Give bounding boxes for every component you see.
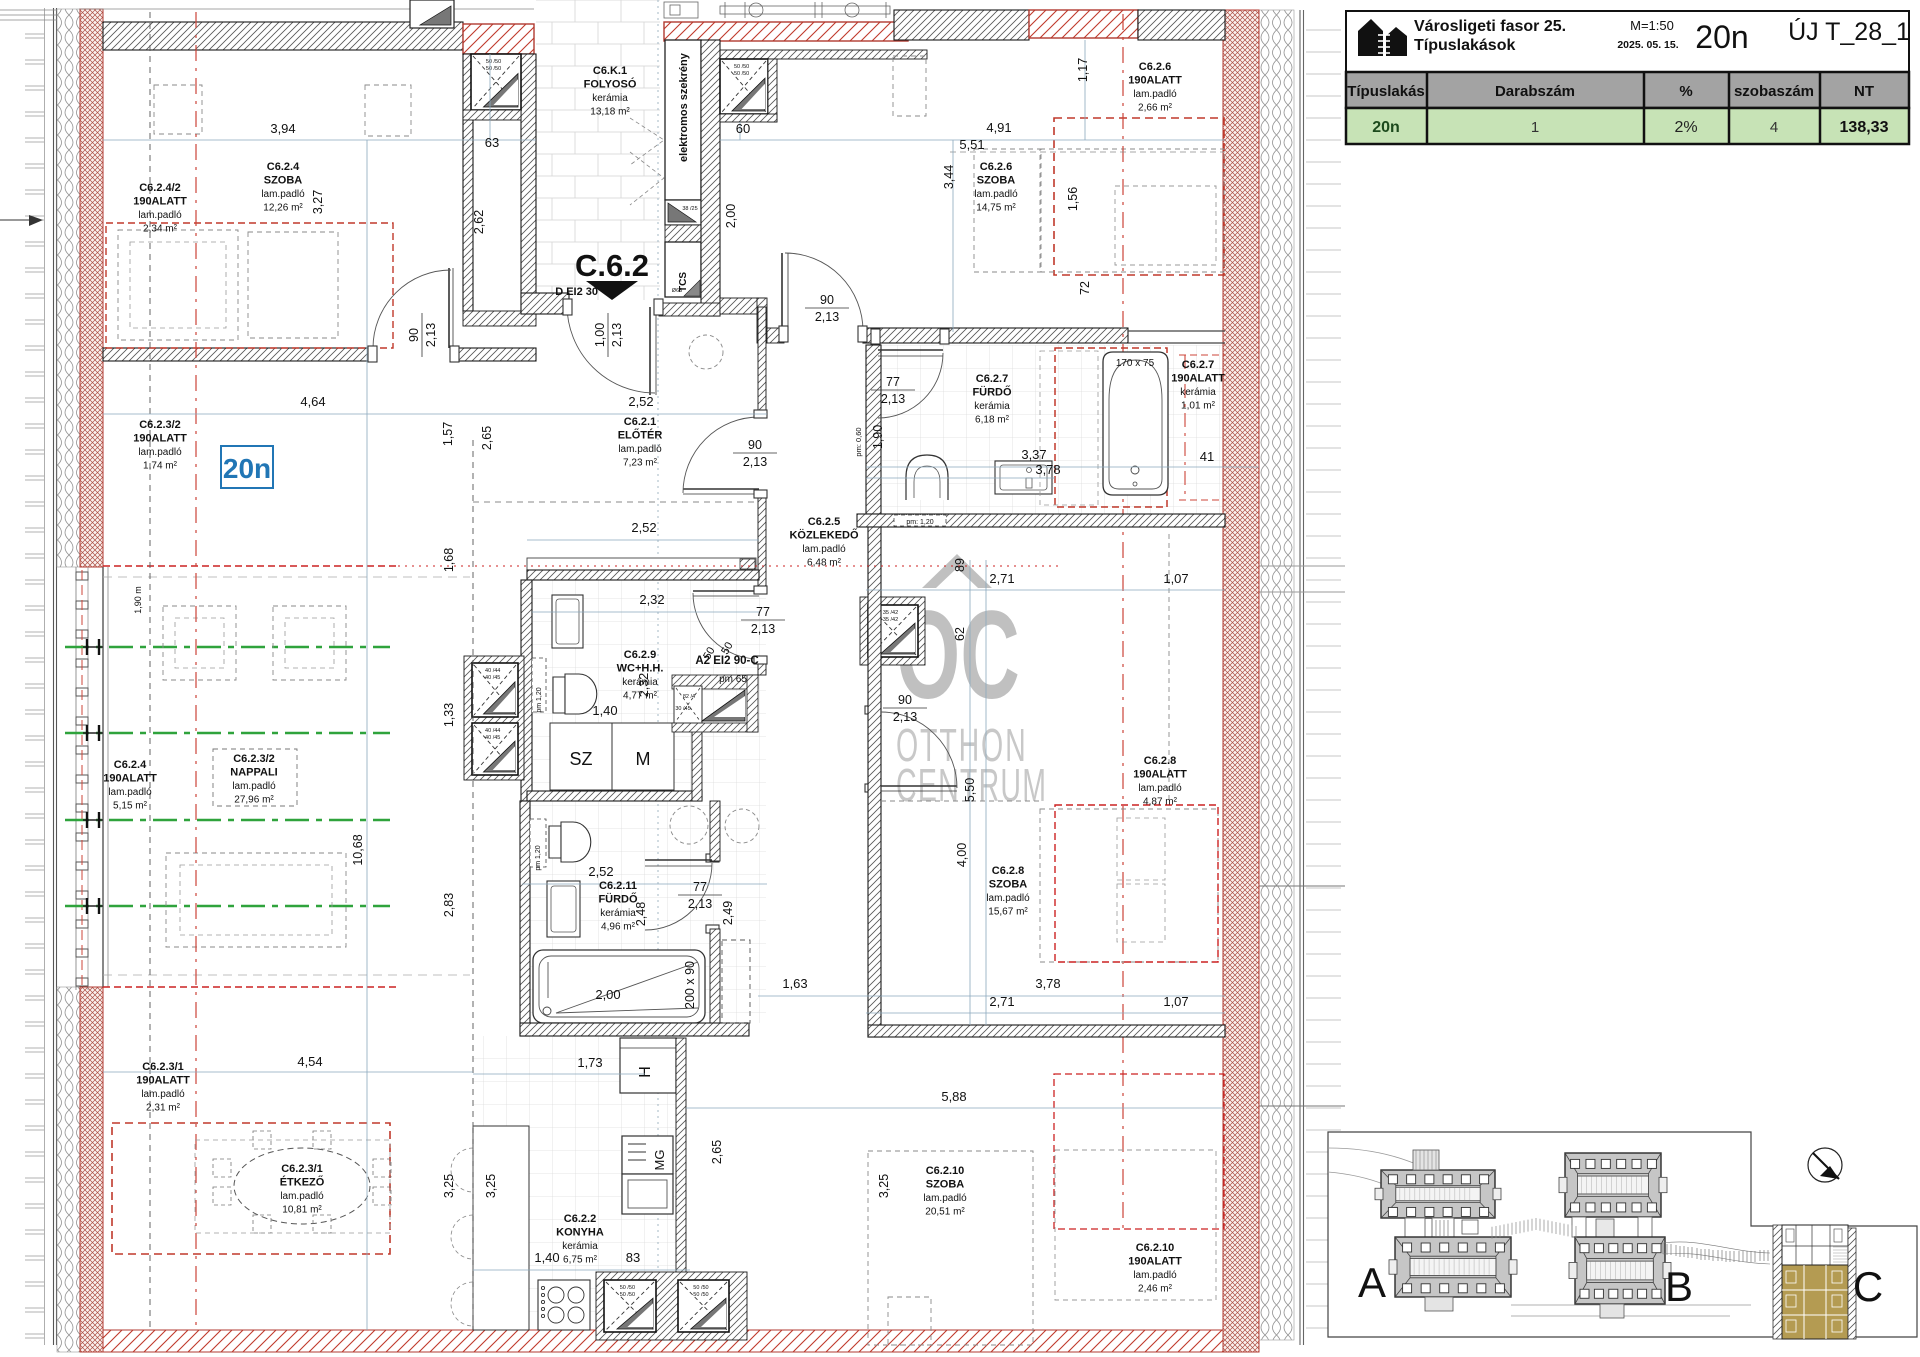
svg-text:3,25: 3,25 (877, 1174, 891, 1198)
svg-text:2,65: 2,65 (480, 426, 494, 450)
svg-text:4,87 m²: 4,87 m² (1143, 797, 1178, 808)
svg-text:KÖZLEKEDŐ: KÖZLEKEDŐ (789, 529, 859, 542)
svg-text:lam.padló: lam.padló (1133, 89, 1177, 100)
svg-text:1,00: 1,00 (593, 323, 607, 347)
svg-text:3,27: 3,27 (311, 190, 325, 214)
svg-text:C6.2.5: C6.2.5 (808, 516, 840, 528)
svg-text:40 /45: 40 /45 (485, 675, 500, 681)
svg-text:4: 4 (1770, 119, 1778, 136)
svg-text:190ALATT: 190ALATT (133, 433, 187, 445)
svg-text:C6.2.9: C6.2.9 (624, 649, 656, 661)
svg-text:5,50: 5,50 (963, 778, 977, 802)
svg-text:63: 63 (485, 135, 499, 150)
svg-text:2%: 2% (1674, 119, 1697, 136)
svg-text:C6.2.11: C6.2.11 (599, 880, 637, 892)
svg-text:4,96 m²: 4,96 m² (601, 922, 636, 933)
svg-text:2,13: 2,13 (751, 622, 775, 636)
svg-text:35 /42: 35 /42 (883, 610, 898, 616)
svg-text:2,13: 2,13 (424, 323, 438, 347)
svg-text:2,66 m²: 2,66 m² (1138, 103, 1173, 114)
svg-text:190ALATT: 190ALATT (103, 773, 157, 785)
svg-text:5,51: 5,51 (959, 137, 984, 152)
svg-text:C6.2.4: C6.2.4 (267, 161, 300, 173)
svg-text:M=1:50: M=1:50 (1630, 18, 1674, 33)
svg-text:40 /44: 40 /44 (485, 728, 500, 734)
svg-text:90: 90 (407, 328, 421, 342)
svg-text:Darabszám: Darabszám (1495, 83, 1575, 100)
svg-text:20n: 20n (223, 453, 271, 484)
svg-text:C6.2.1: C6.2.1 (624, 416, 656, 428)
svg-text:12,26 m²: 12,26 m² (263, 203, 303, 214)
svg-text:C6.2.8: C6.2.8 (1144, 755, 1176, 767)
svg-text:82 /4: 82 /4 (683, 694, 695, 700)
svg-text:SZ: SZ (569, 749, 592, 769)
svg-text:50 /50: 50 /50 (486, 66, 501, 72)
svg-text:2,31 m²: 2,31 m² (146, 1103, 181, 1114)
svg-text:4,00: 4,00 (955, 843, 969, 867)
svg-text:72: 72 (1078, 281, 1092, 295)
svg-text:pm 1,20: pm 1,20 (536, 687, 543, 712)
svg-text:50 /50: 50 /50 (486, 59, 501, 65)
svg-text:ÉTKEZŐ: ÉTKEZŐ (280, 1176, 325, 1189)
svg-text:3,94: 3,94 (270, 121, 295, 136)
svg-text:4,64: 4,64 (300, 394, 325, 409)
svg-text:C6.2.10: C6.2.10 (1136, 1242, 1175, 1254)
svg-text:2,83: 2,83 (442, 893, 456, 917)
svg-text:190ALATT: 190ALATT (133, 196, 187, 208)
svg-text:2,13: 2,13 (743, 455, 767, 469)
svg-text:77: 77 (886, 375, 900, 389)
svg-text:50 /50: 50 /50 (734, 71, 749, 77)
svg-text:KONYHA: KONYHA (556, 1227, 604, 1239)
svg-text:138,33: 138,33 (1840, 119, 1889, 136)
svg-text:lam.padló: lam.padló (280, 1191, 324, 1202)
svg-text:90: 90 (898, 693, 912, 707)
svg-text:190ALATT: 190ALATT (1128, 1256, 1182, 1268)
svg-text:C6.2.3/2: C6.2.3/2 (139, 419, 181, 431)
svg-text:A: A (1358, 1259, 1386, 1306)
svg-text:5,15 m²: 5,15 m² (113, 801, 148, 812)
svg-text:FOLYOSÓ: FOLYOSÓ (584, 78, 637, 91)
svg-text:15,67 m²: 15,67 m² (988, 907, 1028, 918)
svg-text:3,78: 3,78 (1035, 462, 1060, 477)
svg-text:30 /45: 30 /45 (675, 706, 690, 712)
svg-text:2,52: 2,52 (588, 864, 613, 879)
svg-text:Városligeti fasor 25.: Városligeti fasor 25. (1414, 18, 1566, 35)
svg-text:C.6.2: C.6.2 (575, 248, 649, 283)
svg-text:SZOBA: SZOBA (989, 879, 1028, 891)
svg-text:1,74 m²: 1,74 m² (143, 461, 178, 472)
svg-text:190ALATT: 190ALATT (1133, 769, 1187, 781)
svg-text:1,07: 1,07 (1163, 571, 1188, 586)
svg-text:Típuslakások: Típuslakások (1414, 37, 1515, 54)
svg-text:lam.padló: lam.padló (974, 189, 1018, 200)
svg-text:3,37: 3,37 (1021, 447, 1046, 462)
svg-text:90: 90 (748, 438, 762, 452)
svg-text:2,71: 2,71 (989, 994, 1014, 1009)
svg-text:6,75 m²: 6,75 m² (563, 1255, 598, 1266)
svg-text:3,25: 3,25 (442, 1174, 456, 1198)
svg-text:4,77 m²: 4,77 m² (623, 691, 658, 702)
svg-text:C6.2.8: C6.2.8 (992, 865, 1024, 877)
svg-text:lam.padló: lam.padló (138, 447, 182, 458)
svg-text:lam.padló: lam.padló (618, 444, 662, 455)
svg-text:3,78: 3,78 (1035, 976, 1060, 991)
svg-text:2,13: 2,13 (815, 310, 839, 324)
svg-text:C6.2.6: C6.2.6 (980, 161, 1012, 173)
svg-text:20,51 m²: 20,51 m² (925, 1207, 965, 1218)
svg-text:pm 1,20: pm 1,20 (535, 845, 542, 870)
svg-text:40 /44: 40 /44 (485, 668, 500, 674)
svg-text:2,00: 2,00 (724, 204, 738, 228)
svg-text:Típuslakás: Típuslakás (1347, 83, 1425, 100)
svg-text:6,48 m²: 6,48 m² (807, 558, 842, 569)
svg-text:SZOBA: SZOBA (977, 175, 1016, 187)
svg-text:7,23 m²: 7,23 m² (623, 458, 658, 469)
svg-text:1,57: 1,57 (441, 422, 455, 446)
svg-text:WC+H.H.: WC+H.H. (617, 663, 664, 675)
svg-text:50 /50: 50 /50 (693, 1292, 708, 1298)
svg-text:2,13: 2,13 (893, 710, 917, 724)
svg-text:kerámia: kerámia (1180, 387, 1216, 398)
svg-text:lam.padló: lam.padló (141, 1089, 185, 1100)
svg-text:1,90: 1,90 (871, 425, 885, 449)
svg-text:lam.padló: lam.padló (1138, 783, 1182, 794)
svg-text:2025. 05. 15.: 2025. 05. 15. (1617, 39, 1678, 51)
svg-text:190ALATT: 190ALATT (1128, 75, 1182, 87)
svg-text:kerámia: kerámia (974, 401, 1010, 412)
svg-text:3,44: 3,44 (942, 165, 956, 189)
svg-text:5,88: 5,88 (941, 1089, 966, 1104)
svg-text:2,34 m²: 2,34 m² (143, 224, 178, 235)
svg-text:C6.2.7: C6.2.7 (976, 373, 1008, 385)
svg-text:NT: NT (1854, 83, 1874, 100)
svg-text:pm 65: pm 65 (719, 674, 747, 685)
svg-text:14,75 m²: 14,75 m² (976, 203, 1016, 214)
svg-text:2,32: 2,32 (639, 592, 664, 607)
svg-text:1,40: 1,40 (592, 703, 617, 718)
svg-text:ÚJ T_28_1: ÚJ T_28_1 (1788, 17, 1910, 46)
svg-text:C6.2.4/2: C6.2.4/2 (139, 182, 181, 194)
svg-text:kerámia: kerámia (622, 677, 658, 688)
svg-text:2,13: 2,13 (881, 392, 905, 406)
svg-text:20n: 20n (1372, 119, 1400, 136)
svg-text:10,68: 10,68 (351, 834, 365, 865)
svg-text:kerámia: kerámia (592, 93, 628, 104)
svg-text:pm: 0,60: pm: 0,60 (854, 427, 863, 456)
svg-text:90: 90 (820, 293, 834, 307)
svg-text:ELŐTÉR: ELŐTÉR (618, 429, 663, 442)
svg-text:2,52: 2,52 (631, 520, 656, 535)
svg-text:lam.padló: lam.padló (108, 787, 152, 798)
svg-text:13,18 m²: 13,18 m² (590, 107, 630, 118)
svg-text:2,52: 2,52 (628, 394, 653, 409)
svg-text:4,54: 4,54 (297, 1054, 322, 1069)
svg-text:H: H (637, 1066, 654, 1078)
svg-text:50 /50: 50 /50 (734, 64, 749, 70)
svg-text:%: % (1679, 83, 1692, 100)
svg-text:lam.padló: lam.padló (802, 544, 846, 555)
svg-text:SZOBA: SZOBA (264, 175, 303, 187)
svg-text:170 x 75: 170 x 75 (1116, 358, 1155, 369)
svg-text:C6.2.7: C6.2.7 (1182, 359, 1214, 371)
svg-text:77: 77 (693, 880, 707, 894)
svg-text:lam.padló: lam.padló (138, 210, 182, 221)
svg-text:41: 41 (1200, 449, 1214, 464)
svg-text:38 /25: 38 /25 (682, 206, 697, 212)
svg-text:50 /50: 50 /50 (693, 1285, 708, 1291)
svg-text:50 /50: 50 /50 (620, 1285, 635, 1291)
svg-text:2,13: 2,13 (610, 323, 624, 347)
svg-text:szobaszám: szobaszám (1734, 83, 1814, 100)
svg-text:C6.2.4: C6.2.4 (114, 759, 147, 771)
svg-text:pm: 1,20: pm: 1,20 (906, 519, 933, 526)
svg-text:83: 83 (626, 1250, 640, 1265)
svg-text:C6.2.6: C6.2.6 (1139, 61, 1171, 73)
svg-text:1,68: 1,68 (442, 548, 456, 572)
svg-text:elektromos szekrény: elektromos szekrény (678, 52, 690, 162)
svg-text:1,56: 1,56 (1066, 187, 1080, 211)
svg-text:M: M (636, 749, 651, 769)
svg-text:kerámia: kerámia (600, 908, 636, 919)
svg-text:89: 89 (953, 558, 967, 572)
svg-text:10,81 m²: 10,81 m² (282, 1205, 322, 1216)
svg-text:1,33: 1,33 (442, 703, 456, 727)
svg-text:200 x 90: 200 x 90 (683, 961, 697, 1009)
svg-text:C6.2.10: C6.2.10 (926, 1165, 965, 1177)
svg-text:77: 77 (756, 605, 770, 619)
svg-text:2,46 m²: 2,46 m² (1138, 1284, 1173, 1295)
svg-text:SZOBA: SZOBA (926, 1179, 965, 1191)
svg-text:lam.padló: lam.padló (1133, 1270, 1177, 1281)
svg-text:lam.padló: lam.padló (986, 893, 1030, 904)
svg-text:3,25: 3,25 (484, 1174, 498, 1198)
svg-text:1,17: 1,17 (1076, 58, 1090, 82)
svg-text:1,63: 1,63 (782, 976, 807, 991)
svg-text:20n: 20n (1695, 19, 1748, 55)
svg-text:C6.2.2: C6.2.2 (564, 1213, 596, 1225)
svg-text:190ALATT: 190ALATT (136, 1075, 190, 1087)
svg-text:C6.2.3/1: C6.2.3/1 (281, 1163, 323, 1175)
svg-text:D EI2 30: D EI2 30 (555, 286, 598, 298)
svg-text:62: 62 (953, 627, 967, 641)
svg-text:1: 1 (1531, 119, 1539, 136)
svg-text:Ø66: Ø66 (672, 288, 682, 294)
svg-text:35 /42: 35 /42 (883, 617, 898, 623)
svg-text:2,13: 2,13 (688, 897, 712, 911)
svg-text:1,07: 1,07 (1163, 994, 1188, 1009)
svg-text:1,73: 1,73 (577, 1055, 602, 1070)
svg-text:FÜRDŐ: FÜRDŐ (972, 386, 1012, 399)
svg-text:kerámia: kerámia (562, 1241, 598, 1252)
svg-text:1,90 m: 1,90 m (133, 586, 143, 614)
svg-text:4,91: 4,91 (986, 120, 1011, 135)
svg-text:B: B (1665, 1263, 1693, 1310)
svg-text:190ALATT: 190ALATT (1171, 373, 1225, 385)
svg-text:1,40: 1,40 (534, 1250, 559, 1265)
svg-text:MG: MG (652, 1150, 667, 1171)
svg-text:FÜRDŐ: FÜRDŐ (598, 893, 638, 906)
svg-text:2,71: 2,71 (989, 571, 1014, 586)
svg-text:lam.padló: lam.padló (261, 189, 305, 200)
svg-text:C: C (1853, 1263, 1883, 1310)
svg-text:2,62: 2,62 (472, 210, 486, 234)
svg-text:2,00: 2,00 (595, 987, 620, 1002)
svg-text:NAPPALI: NAPPALI (230, 767, 277, 779)
svg-text:C6.K.1: C6.K.1 (593, 65, 627, 77)
svg-text:2,65: 2,65 (710, 1140, 724, 1164)
svg-text:lam.padló: lam.padló (923, 1193, 967, 1204)
svg-text:6,18 m²: 6,18 m² (975, 415, 1010, 426)
svg-text:40 /45: 40 /45 (485, 735, 500, 741)
svg-text:50 /50: 50 /50 (620, 1292, 635, 1298)
svg-text:2,49: 2,49 (721, 901, 735, 925)
svg-text:27,96 m²: 27,96 m² (234, 795, 274, 806)
svg-text:C6.2.3/2: C6.2.3/2 (233, 753, 275, 765)
svg-text:1,01 m²: 1,01 m² (1181, 401, 1216, 412)
svg-text:60: 60 (736, 121, 750, 136)
svg-text:C6.2.3/1: C6.2.3/1 (142, 1061, 184, 1073)
svg-text:lam.padló: lam.padló (232, 781, 276, 792)
